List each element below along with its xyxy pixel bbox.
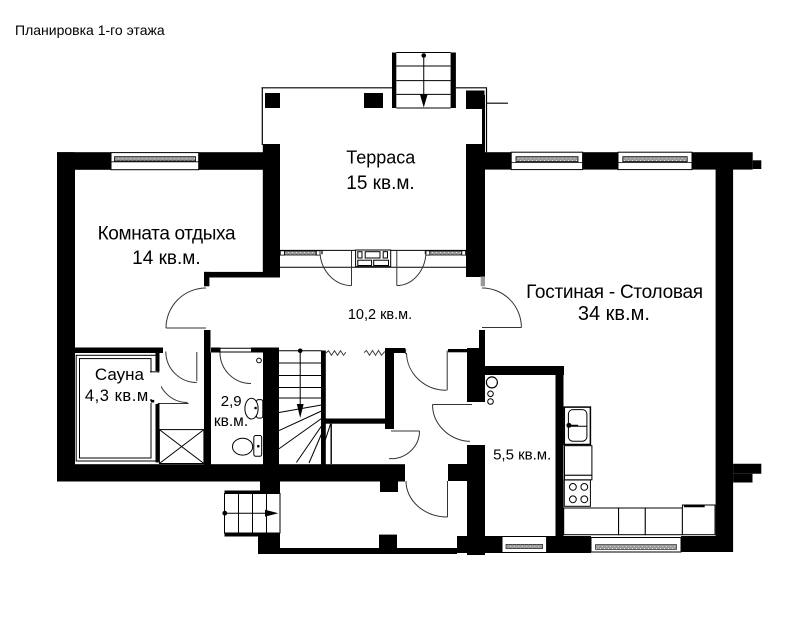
svg-text:Сауна: Сауна	[95, 365, 145, 384]
svg-text:Гостиная - Столовая: Гостиная - Столовая	[526, 282, 703, 303]
svg-text:кв.м.: кв.м.	[214, 413, 248, 430]
svg-text:2,9: 2,9	[221, 393, 242, 410]
svg-text:14 кв.м.: 14 кв.м.	[132, 248, 200, 269]
svg-text:Терраса: Терраса	[346, 148, 416, 168]
svg-text:4,3 кв.м.: 4,3 кв.м.	[85, 387, 154, 405]
svg-text:Комната отдыха: Комната отдыха	[98, 224, 236, 245]
svg-text:34 кв.м.: 34 кв.м.	[578, 303, 650, 325]
svg-text:5,5 кв.м.: 5,5 кв.м.	[493, 446, 551, 463]
svg-text:15 кв.м.: 15 кв.м.	[346, 173, 414, 194]
svg-text:Планировка 1-го этажа: Планировка 1-го этажа	[15, 22, 165, 38]
svg-text:10,2 кв.м.: 10,2 кв.м.	[348, 307, 412, 323]
